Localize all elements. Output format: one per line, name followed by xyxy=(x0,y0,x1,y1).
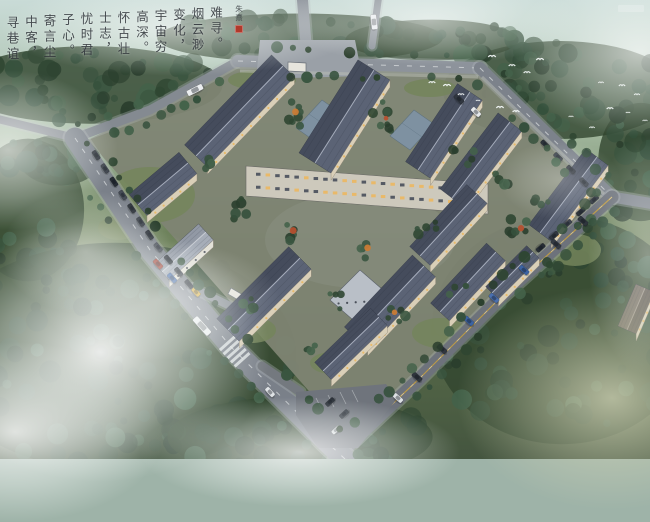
rendering-canvas: 朱熹 难寻。烟云渺变化，宇宙穷高深。怀古壮士志，忧时君子心。寄言尘中客，寻巷谊 xyxy=(0,0,650,459)
faint-watermark xyxy=(618,5,644,12)
aerial-scene xyxy=(0,0,650,459)
